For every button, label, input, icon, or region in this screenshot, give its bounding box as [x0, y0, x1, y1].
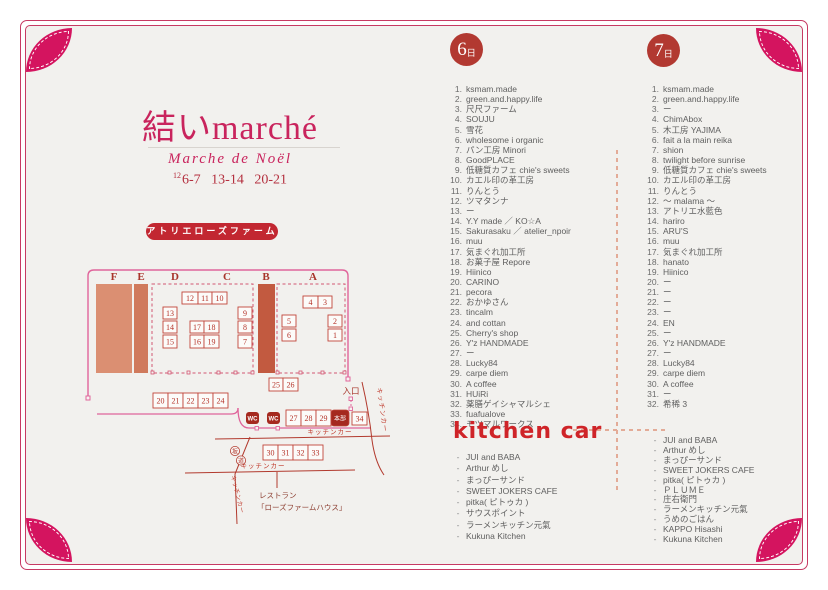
region-gate-marker — [299, 371, 302, 374]
road-end-marker — [86, 396, 90, 400]
stall-number: 19 — [208, 338, 216, 347]
vendor-item: 17.気まぐれ加工所 — [448, 247, 616, 257]
stall-number: 17 — [193, 323, 201, 332]
region-gate-marker — [343, 371, 346, 374]
vendor-item: 21.ー — [645, 287, 813, 297]
section-letter-F: F — [111, 271, 118, 283]
wc-label: WC — [248, 417, 259, 423]
map-block-E — [134, 284, 148, 373]
stall-number: 29 — [320, 414, 328, 423]
vendor-item: 29.carpe diem — [645, 368, 813, 378]
month-superscript: 12 — [173, 171, 181, 180]
stall-number: 20 — [157, 397, 165, 406]
vendor-item: 12.～ malama ～ — [645, 196, 813, 206]
vendor-item: 20.ー — [645, 277, 813, 287]
stall-number: 13 — [166, 309, 174, 318]
section-letter-E: E — [137, 271, 144, 283]
vendor-item: 16.muu — [645, 236, 813, 246]
vendor-item: 33.fuafualove — [448, 409, 616, 419]
stall-number: 16 — [193, 338, 201, 347]
vendor-item: 22.ー — [645, 297, 813, 307]
kitchen-car-road-label: キッチンカー — [241, 462, 286, 470]
stall-number: 4 — [309, 298, 313, 307]
region-gate-marker — [234, 371, 237, 374]
flyer-page: 結いmarché Marche de Noël 126-7 13-14 20-2… — [0, 0, 828, 590]
map-block-F — [96, 284, 132, 373]
stall-number: 3 — [323, 298, 327, 307]
slope-char: 坂 — [232, 448, 238, 456]
vendor-item: 27.ー — [645, 348, 813, 358]
section-letter-C: C — [223, 271, 231, 283]
road-end-marker — [276, 427, 280, 431]
day7-vendor-list: 1.ksmam.made2.green.and.happy.life3.ー4.C… — [645, 84, 813, 409]
stall-number: 33 — [312, 449, 320, 458]
vendor-item: 23.tincalm — [448, 307, 616, 317]
title-divider — [148, 147, 340, 148]
vendor-item: 26.Y'z HANDMADE — [448, 338, 616, 348]
road-end-marker — [255, 427, 259, 431]
day6-kitchen-list: -JUI and BABA-Arthur めし-まっぴーサンド-SWEET JO… — [454, 452, 616, 542]
day6-badge-suffix: 日 — [467, 46, 476, 59]
pink-road — [97, 408, 238, 414]
vendor-item: 22.おかゆさん — [448, 297, 616, 307]
vendor-item: 20.CARINO — [448, 277, 616, 287]
vendor-item: 1.ksmam.made — [448, 84, 616, 94]
kitchen-car-road-label: キッチンカー — [229, 475, 245, 515]
vendor-item: 4.SOUJU — [448, 114, 616, 124]
stall-number: 25 — [272, 381, 280, 390]
stall-number: 27 — [290, 414, 298, 423]
map-block-B — [258, 284, 275, 373]
vendor-item: 23.ー — [645, 307, 813, 317]
vendor-item: 3.尺尺ファーム — [448, 104, 616, 114]
kitchen-car-road — [185, 470, 355, 473]
vendor-item: 2.green.and.happy.life — [448, 94, 616, 104]
slope-char: 道 — [238, 457, 244, 465]
kitchen-car-item: -Kukuna Kitchen — [454, 531, 616, 542]
stall-number: 18 — [208, 323, 216, 332]
vendor-item: 9.低糖質カフェ chie's sweets — [645, 165, 813, 175]
vendor-item: 7.パン工房 Minori — [448, 145, 616, 155]
vendor-item: 11.りんとう — [645, 186, 813, 196]
vendor-item: 21.pecora — [448, 287, 616, 297]
vendor-item: 13.アトリエ水藍色 — [645, 206, 813, 216]
page-title: 結いmarché — [85, 100, 375, 149]
vendor-item: 32.希稀 3 — [645, 399, 813, 409]
vendor-item: 30.A coffee — [645, 379, 813, 389]
day6-vendor-list: 1.ksmam.made2.green.and.happy.life3.尺尺ファ… — [448, 84, 616, 429]
day7-badge-number: 7 — [654, 41, 664, 60]
stall-number: 30 — [267, 449, 275, 458]
vendor-item: 28.Lucky84 — [645, 358, 813, 368]
vendor-item: 14.Y.Y made ／ KO☆A — [448, 216, 616, 226]
stall-number: 6 — [287, 331, 291, 340]
subtitle: Marche de Noël — [85, 151, 375, 168]
stall-number: 26 — [287, 381, 295, 390]
vendor-item: 8.GoodPLACE — [448, 155, 616, 165]
vendor-item: 27.ー — [448, 348, 616, 358]
kitchen-car-item: -サウスポイント — [454, 508, 616, 519]
kitchen-car-item: -pitka( ピトゥカ ) — [454, 497, 616, 508]
vendor-item: 14.hariro — [645, 216, 813, 226]
vendor-item: 8.twilight before sunrise — [645, 155, 813, 165]
region-gate-marker — [168, 371, 171, 374]
vendor-item: 10.カエル印の革工房 — [645, 175, 813, 185]
vendor-item: 12.ツマタンナ — [448, 196, 616, 206]
kitchen-car-item: -Arthur めし — [454, 463, 616, 474]
vendor-item: 19.Hiinico — [645, 267, 813, 277]
region-gate-marker — [217, 371, 220, 374]
stall-number: 22 — [187, 397, 195, 406]
section-letter-A: A — [309, 271, 317, 283]
vendor-item: 6.wholesome i organic — [448, 135, 616, 145]
kitchen-car-item: -ラーメンキッチン元氣 — [454, 520, 616, 531]
vendor-item: 15.Sakurasaku ／ atelier_npoir — [448, 226, 616, 236]
stall-number: 14 — [166, 323, 174, 332]
restaurant-label-line2: 「ローズファームハウス」 — [257, 502, 346, 512]
stall-number: 5 — [287, 317, 291, 326]
day7-badge: 7日 — [647, 34, 680, 67]
vendor-item: 7.shion — [645, 145, 813, 155]
stall-number: 9 — [243, 309, 247, 318]
wc-label: WC — [269, 417, 280, 423]
region-gate-marker — [251, 371, 254, 374]
vendor-item: 2.green.and.happy.life — [645, 94, 813, 104]
road-end-marker — [349, 407, 353, 411]
dates-text: 6-7 13-14 20-21 — [182, 173, 287, 188]
vendor-item: 32.薬膳ゲイシャマルシェ — [448, 399, 616, 409]
vendor-item: 24.EN — [645, 318, 813, 328]
day6-badge: 6日 — [450, 33, 483, 66]
vendor-item: 6.fait a la main reika — [645, 135, 813, 145]
honbu-label: 本部 — [334, 415, 346, 423]
vendor-item: 10.カエル印の革工房 — [448, 175, 616, 185]
event-dates: 126-7 13-14 20-21 — [85, 171, 375, 189]
road-end-marker — [346, 377, 350, 381]
vendor-item: 17.気まぐれ加工所 — [645, 247, 813, 257]
kitchen-car-item: -SWEET JOKERS CAFE — [454, 486, 616, 497]
vendor-item: 18.hanato — [645, 257, 813, 267]
stall-number: 8 — [243, 323, 247, 332]
venue-map: FEDCBA 入口 キッチンカー キッチンカー キッチンカー キッチンカー 坂 … — [85, 262, 397, 554]
kitchen-car-item: -まっぴーサンド — [454, 475, 616, 486]
kitchen-car-road-label: キッチンカー — [375, 387, 389, 433]
vendor-item: 11.りんとう — [448, 186, 616, 196]
vendor-item: 28.Lucky84 — [448, 358, 616, 368]
section-letter-D: D — [171, 271, 179, 283]
kitchen-car-item: -JUI and BABA — [454, 452, 616, 463]
stall-number: 32 — [297, 449, 305, 458]
vendor-item: 31.ー — [645, 389, 813, 399]
kitchen-car-road-label: キッチンカー — [308, 428, 353, 436]
region-gate-marker — [187, 371, 190, 374]
column-divider — [616, 150, 618, 492]
kitchen-car-heading: kitchen car — [453, 419, 602, 444]
region-gate-marker — [151, 371, 154, 374]
vendor-item: 5.雪花 — [448, 125, 616, 135]
vendor-item: 25.ー — [645, 328, 813, 338]
stall-number: 10 — [216, 294, 224, 303]
vendor-item: 30.A coffee — [448, 379, 616, 389]
day7-badge-suffix: 日 — [664, 47, 673, 60]
stall-number: 1 — [333, 331, 337, 340]
vendor-item: 16.muu — [448, 236, 616, 246]
vendor-item: 18.お菓子屋 Repore — [448, 257, 616, 267]
stall-number: 34 — [356, 415, 364, 424]
stall-number: 12 — [186, 294, 194, 303]
section-letter-B: B — [262, 271, 270, 283]
stall-number: 11 — [201, 294, 209, 303]
vendor-item: 26.Y'z HANDMADE — [645, 338, 813, 348]
stall-number: 31 — [282, 449, 290, 458]
vendor-item: 15.ARU'S — [645, 226, 813, 236]
stall-number: 23 — [202, 397, 210, 406]
stall-number: 7 — [243, 338, 247, 347]
region-gate-marker — [276, 371, 279, 374]
stall-number: 28 — [305, 414, 313, 423]
stall-number: 2 — [333, 317, 337, 326]
vendor-item: 4.ChimAbox — [645, 114, 813, 124]
stall-number: 15 — [166, 338, 174, 347]
vendor-item: 5.木工房 YAJIMA — [645, 125, 813, 135]
vendor-item: 19.Hiinico — [448, 267, 616, 277]
entrance-label: 入口 — [342, 386, 359, 396]
venue-badge: アトリエローズファーム — [146, 223, 278, 240]
stall-number: 24 — [217, 397, 225, 406]
kitchen-car-road — [215, 436, 390, 439]
vendor-item: 3.ー — [645, 104, 813, 114]
vendor-item: 1.ksmam.made — [645, 84, 813, 94]
vendor-item: 13.ー — [448, 206, 616, 216]
stall-number: 21 — [172, 397, 180, 406]
region-gate-marker — [321, 371, 324, 374]
road-end-marker — [349, 397, 353, 401]
vendor-item: 9.低糖質カフェ chie's sweets — [448, 165, 616, 175]
day6-badge-number: 6 — [457, 40, 467, 59]
vendor-item: 29.carpe diem — [448, 368, 616, 378]
restaurant-label-line1: レストラン — [259, 491, 297, 500]
vendor-item: 31.HUiRi — [448, 389, 616, 399]
vendor-item: 24.and cottan — [448, 318, 616, 328]
vendor-item: 25.Cherry's shop — [448, 328, 616, 338]
